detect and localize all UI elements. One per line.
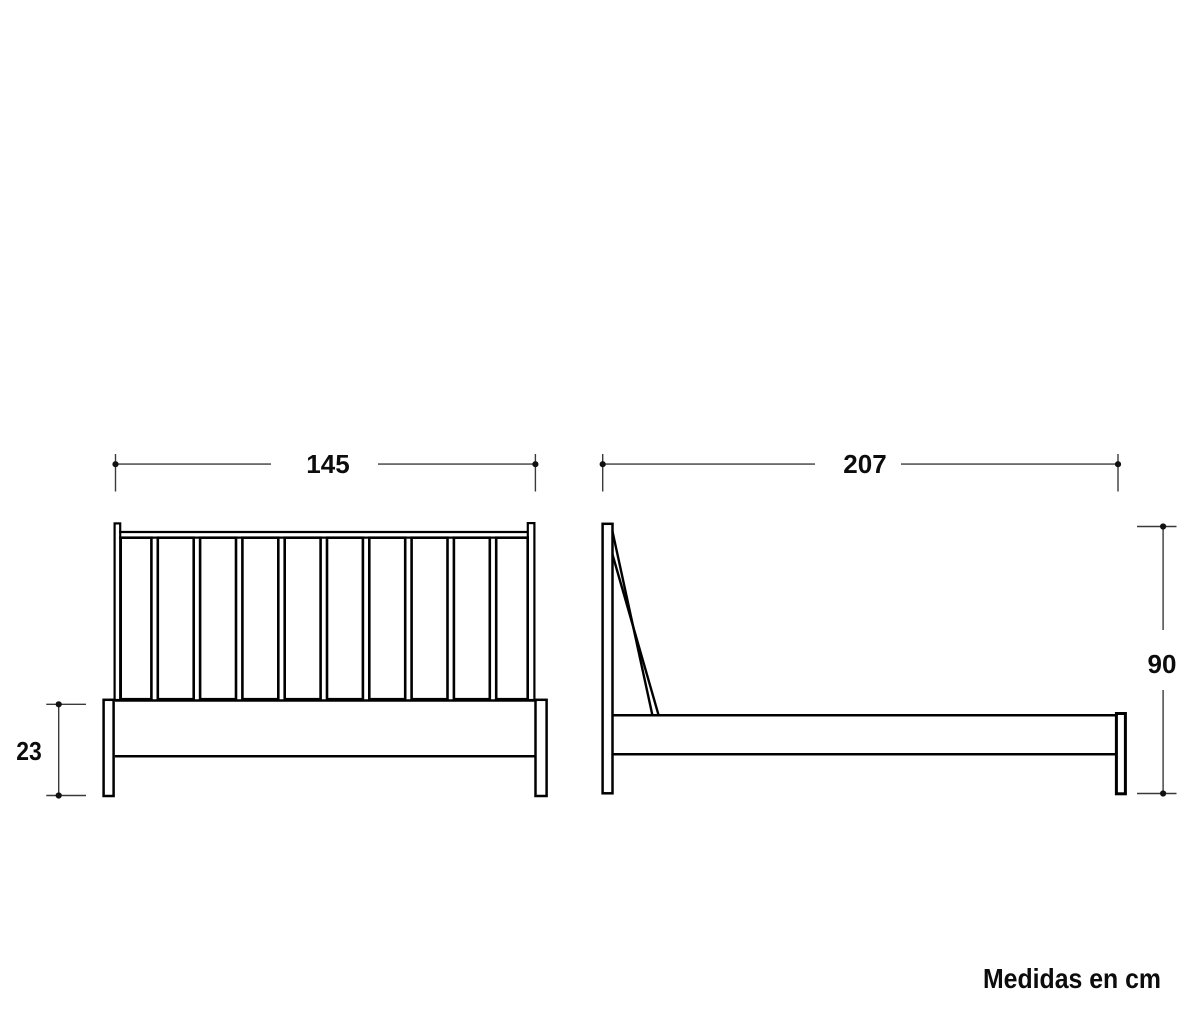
svg-text:Medidas en cm: Medidas en cm bbox=[983, 963, 1161, 994]
svg-text:207: 207 bbox=[843, 449, 886, 479]
svg-text:145: 145 bbox=[306, 449, 349, 479]
svg-text:90: 90 bbox=[1148, 649, 1177, 679]
svg-text:23: 23 bbox=[16, 736, 42, 766]
